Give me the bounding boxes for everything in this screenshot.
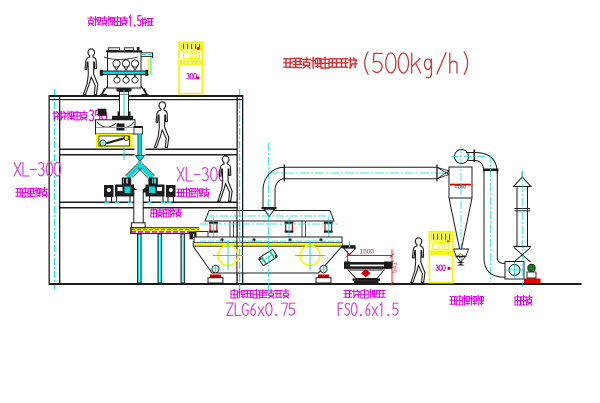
svg-text:541: 541 <box>392 262 399 273</box>
svg-text:1500: 1500 <box>360 249 375 256</box>
